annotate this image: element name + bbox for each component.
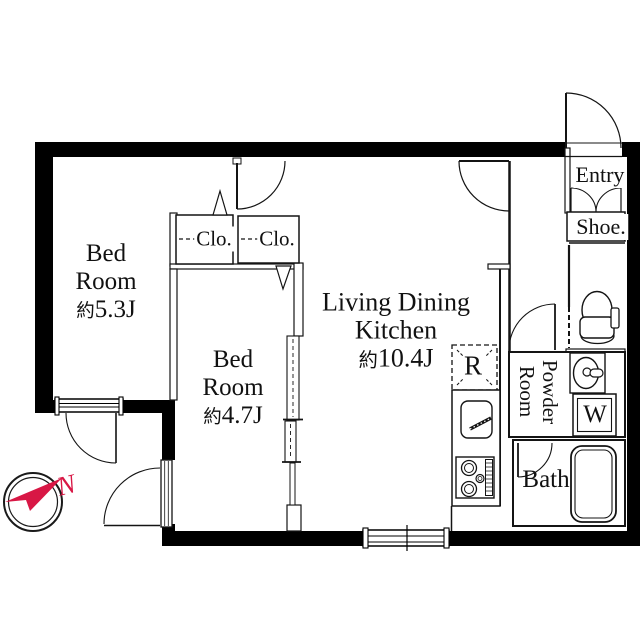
window-ldk bbox=[363, 525, 449, 551]
sliding-partition bbox=[282, 336, 303, 505]
compass: N bbox=[4, 468, 81, 531]
bedroom1-label: Bed Room 約5.3J bbox=[75, 240, 136, 326]
floor-plan: N Bed Room 約5.3J Bed Room 約4.7J Living D… bbox=[0, 0, 640, 640]
bedroom1-area-prefix: 約 bbox=[76, 302, 95, 322]
ldk-name-line2: Kitchen bbox=[322, 317, 470, 345]
stove bbox=[456, 457, 494, 498]
wall-bottom-left-seg bbox=[162, 531, 363, 546]
ldk-area-prefix: 約 bbox=[359, 351, 378, 372]
bedroom2-name-line1: Bed bbox=[202, 346, 263, 374]
ldk-area-value: 10.4J bbox=[378, 344, 434, 373]
washbasin bbox=[570, 353, 605, 393]
wall-top bbox=[35, 142, 565, 157]
closet-right-open-triangle bbox=[276, 266, 291, 289]
basin-faucet bbox=[590, 369, 603, 377]
ldk-area: 約10.4J bbox=[322, 345, 470, 376]
bedroom2-area-prefix: 約 bbox=[203, 408, 222, 428]
ldk-name-line1: Living Dining bbox=[322, 289, 470, 317]
wall-partition-top bbox=[294, 263, 303, 336]
toilet-room bbox=[566, 243, 625, 355]
wall-left bbox=[35, 142, 53, 413]
closet-left-label: Clo. bbox=[194, 227, 234, 252]
door-entry bbox=[566, 93, 621, 148]
kitchen-sink bbox=[461, 401, 492, 438]
compass-needle bbox=[5, 478, 62, 511]
door-bedroom2-exterior bbox=[104, 460, 172, 527]
bedroom1-name-line2: Room bbox=[75, 268, 136, 296]
refrigerator-label: R bbox=[464, 351, 482, 382]
washer-label: W bbox=[583, 401, 607, 429]
wall-right bbox=[627, 142, 640, 546]
entry-label: Entry bbox=[574, 162, 627, 188]
wall-bl-a bbox=[35, 400, 55, 413]
wall-kitchen-stub bbox=[488, 264, 510, 269]
bedroom2-label: Bed Room 約4.7J bbox=[202, 346, 263, 432]
wall-bedroom2-left bbox=[170, 269, 177, 400]
bedroom1-area-value: 5.3J bbox=[95, 296, 136, 323]
closet-right-label: Clo. bbox=[257, 227, 297, 252]
ldk-label: Living Dining Kitchen 約10.4J bbox=[322, 289, 470, 376]
bath-label: Bath bbox=[522, 466, 569, 494]
bedroom2-name-line2: Room bbox=[202, 374, 263, 402]
wall-bottom-right-seg bbox=[449, 531, 640, 546]
bedroom1-name-line1: Bed bbox=[75, 240, 136, 268]
wall-partition-bottom bbox=[287, 505, 301, 531]
partition-track bbox=[290, 463, 295, 505]
powder-room-label: Powder Room bbox=[515, 360, 561, 424]
window-bedroom1 bbox=[55, 397, 123, 415]
shoe-label: Shoe. bbox=[574, 214, 628, 240]
powder-room-line2: Room bbox=[515, 360, 538, 424]
closet-left-open-triangle bbox=[213, 191, 227, 215]
bedroom2-area: 約4.7J bbox=[202, 402, 263, 432]
door-bedroom1 bbox=[233, 158, 285, 209]
door-powder-room bbox=[509, 304, 555, 350]
shoe-door-right-arc bbox=[596, 188, 621, 212]
bathtub bbox=[571, 446, 616, 522]
shoe-door-left-arc bbox=[571, 188, 596, 212]
bedroom1-area: 約5.3J bbox=[75, 296, 136, 326]
bedroom2-area-value: 4.7J bbox=[222, 402, 263, 429]
wall-bl-vert-upper bbox=[162, 400, 175, 460]
door-bedroom1-exterior bbox=[66, 413, 116, 463]
door-ldk-hall bbox=[459, 161, 509, 211]
wall-entry-left bbox=[565, 148, 570, 213]
powder-room-line1: Powder bbox=[538, 360, 561, 424]
toilet-fixture bbox=[580, 292, 619, 344]
